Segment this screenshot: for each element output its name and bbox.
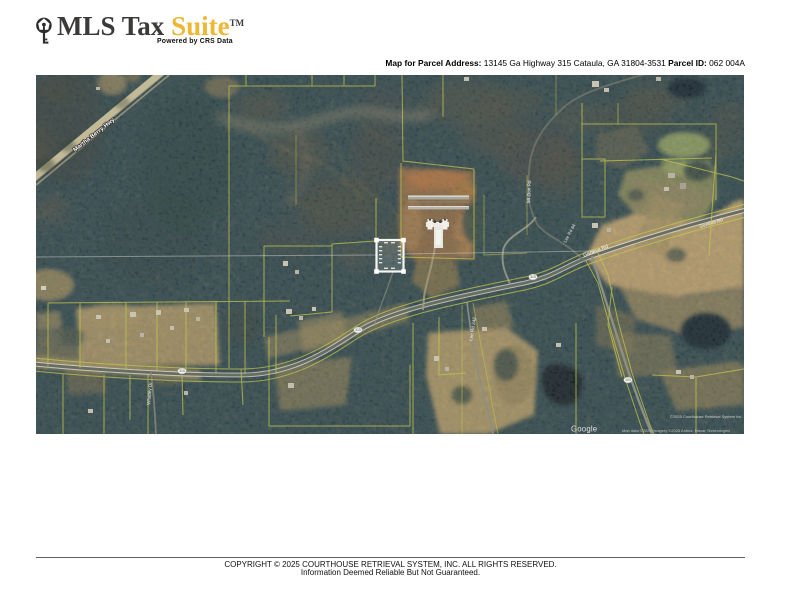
svg-text:Map data ©2025 Imagery ©2025: Map data ©2025 Imagery ©2025 Airbus, Max… [622, 428, 730, 433]
svg-text:315: 315 [179, 369, 185, 373]
svg-text:Mt Zion Rd: Mt Zion Rd [526, 180, 532, 203]
svg-text:103: 103 [625, 378, 631, 382]
svg-text:Google: Google [571, 425, 597, 434]
svg-text:315: 315 [355, 328, 361, 332]
svg-text:©2025 Courthouse Retrieval Sys: ©2025 Courthouse Retrieval System Inc [670, 414, 741, 419]
svg-text:315: 315 [530, 275, 536, 279]
